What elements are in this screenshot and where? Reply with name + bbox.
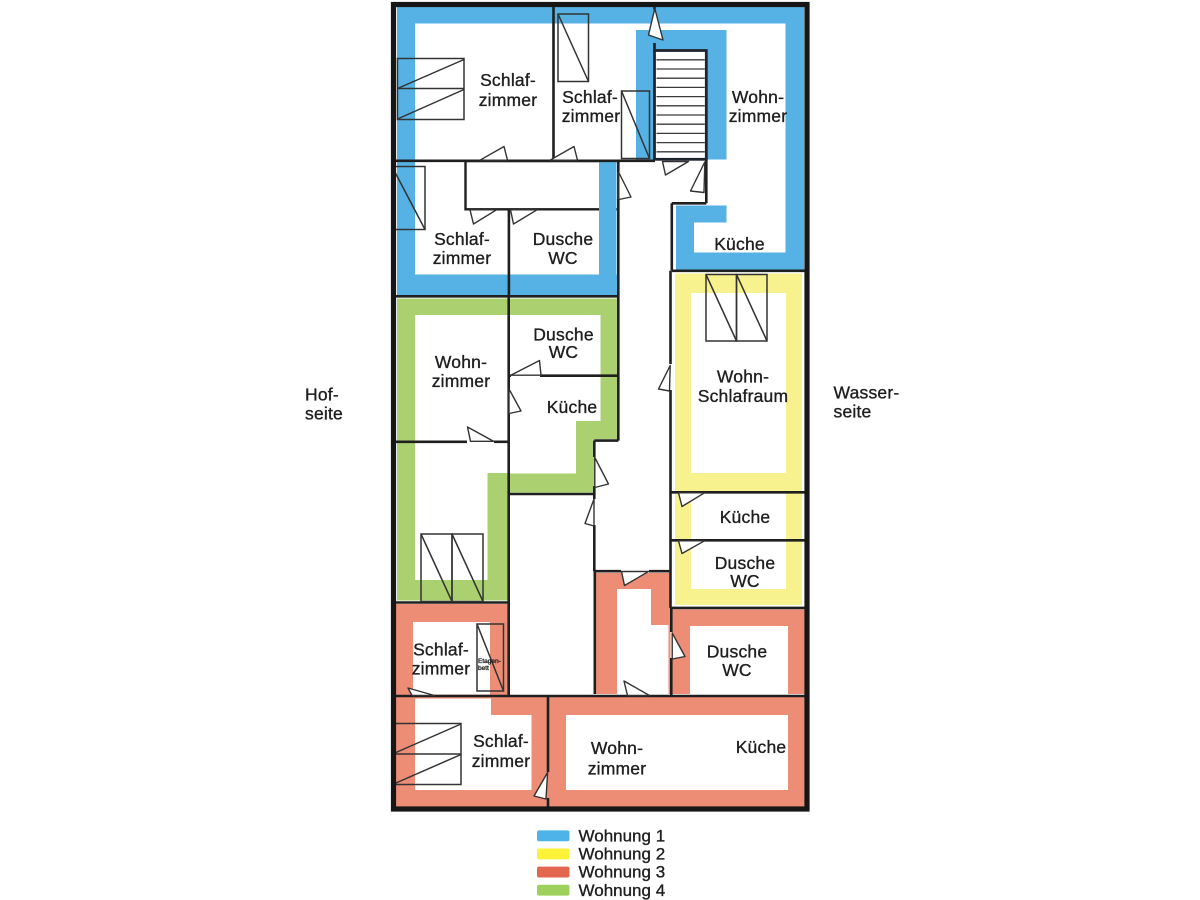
svg-text:Dusche: Dusche xyxy=(707,642,768,662)
svg-text:Küche: Küche xyxy=(736,737,787,757)
svg-text:zimmer: zimmer xyxy=(412,659,471,679)
svg-text:bett: bett xyxy=(478,665,489,672)
svg-text:Dusche: Dusche xyxy=(533,229,594,249)
svg-text:Wohn-: Wohn- xyxy=(732,87,784,107)
svg-text:WC: WC xyxy=(548,248,578,268)
svg-text:Schlaf-: Schlaf- xyxy=(473,731,529,751)
svg-text:Dusche: Dusche xyxy=(715,553,776,573)
svg-text:seite: seite xyxy=(834,402,872,422)
svg-text:Schlaf-: Schlaf- xyxy=(434,229,490,249)
svg-text:Schlaf-: Schlaf- xyxy=(562,87,618,107)
svg-text:WC: WC xyxy=(722,660,752,680)
svg-text:zimmer: zimmer xyxy=(479,90,538,110)
svg-text:Wohnung 1: Wohnung 1 xyxy=(579,827,666,846)
svg-text:zimmer: zimmer xyxy=(729,106,788,126)
svg-text:zimmer: zimmer xyxy=(562,106,621,126)
svg-text:Küche: Küche xyxy=(714,234,765,254)
svg-text:Schlaf-: Schlaf- xyxy=(413,640,469,660)
svg-text:Wohn-: Wohn- xyxy=(435,352,487,372)
svg-text:zimmer: zimmer xyxy=(433,248,492,268)
svg-text:zimmer: zimmer xyxy=(472,751,531,771)
svg-text:Schlaf-: Schlaf- xyxy=(480,70,536,90)
svg-text:zimmer: zimmer xyxy=(432,371,491,391)
svg-text:Wohn-: Wohn- xyxy=(717,367,769,387)
svg-text:zimmer: zimmer xyxy=(588,759,647,779)
svg-text:Küche: Küche xyxy=(547,397,598,417)
svg-text:Küche: Küche xyxy=(720,507,771,527)
svg-text:Wasser-: Wasser- xyxy=(834,383,900,403)
svg-text:WC: WC xyxy=(730,571,760,591)
svg-text:Wohnung 3: Wohnung 3 xyxy=(579,863,666,882)
svg-text:WC: WC xyxy=(549,342,579,362)
svg-text:Wohnung 2: Wohnung 2 xyxy=(579,845,666,864)
svg-text:Etagen-: Etagen- xyxy=(478,658,501,665)
svg-text:seite: seite xyxy=(305,404,343,424)
svg-text:Wohn-: Wohn- xyxy=(591,738,643,758)
svg-text:Hof-: Hof- xyxy=(305,385,339,405)
svg-text:Wohnung 4: Wohnung 4 xyxy=(579,881,666,900)
svg-text:Schlafraum: Schlafraum xyxy=(698,386,789,406)
